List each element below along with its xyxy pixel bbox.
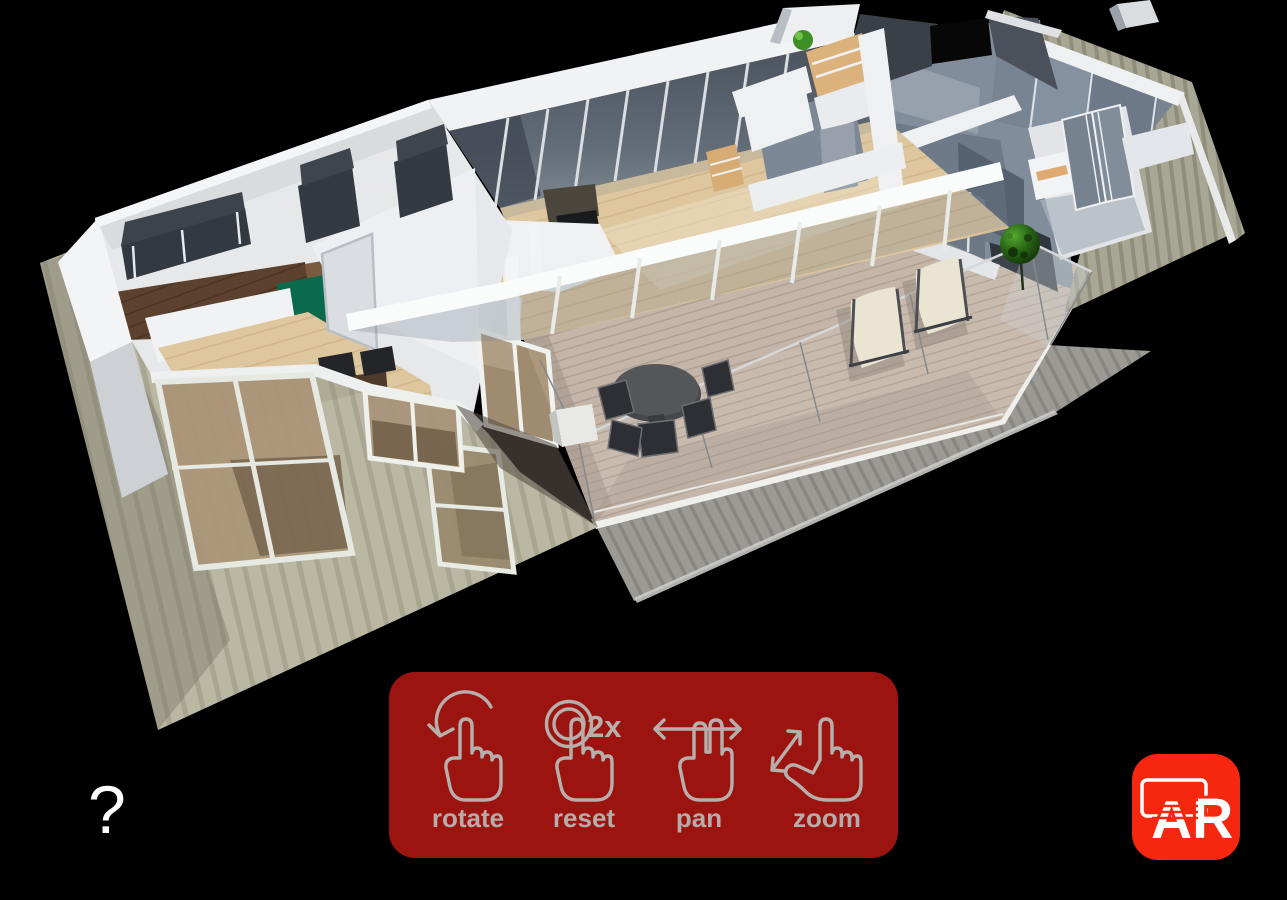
svg-text:rotate: rotate [432, 803, 504, 833]
svg-text:2x: 2x [587, 709, 622, 744]
svg-text:pan: pan [676, 803, 722, 833]
svg-text:?: ? [88, 772, 126, 848]
svg-text:reset: reset [553, 803, 615, 833]
svg-text:zoom: zoom [793, 803, 861, 833]
